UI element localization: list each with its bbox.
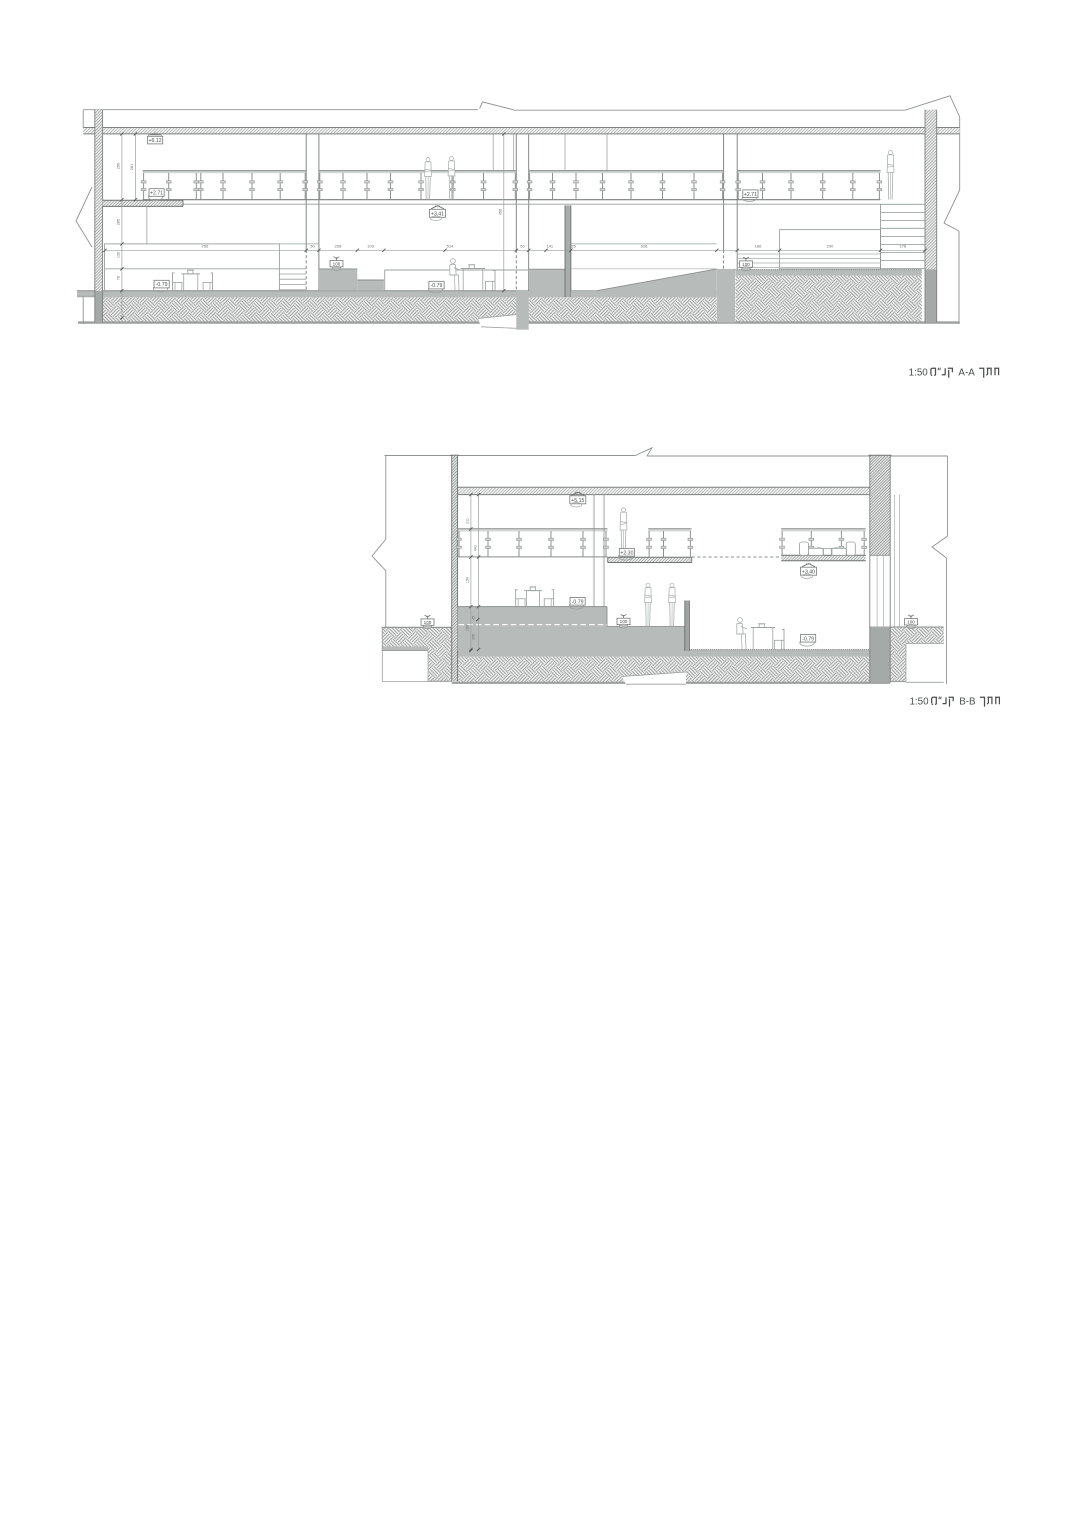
svg-text:281: 281 — [130, 164, 134, 170]
svg-text:256: 256 — [117, 163, 121, 169]
svg-text:100: 100 — [907, 620, 915, 625]
svg-text:100: 100 — [466, 625, 470, 631]
svg-text:290: 290 — [827, 244, 834, 249]
svg-text:A-A: A-A — [958, 368, 975, 379]
svg-text:141: 141 — [546, 244, 553, 249]
svg-text:100: 100 — [742, 262, 750, 267]
svg-text:1:50: 1:50 — [909, 368, 929, 379]
svg-text:456: 456 — [498, 209, 502, 215]
svg-text:78: 78 — [117, 276, 121, 280]
svg-text:441: 441 — [473, 545, 477, 551]
svg-text:-0.79: -0.79 — [572, 599, 584, 605]
svg-text:103: 103 — [367, 244, 374, 249]
svg-text:B-B: B-B — [959, 696, 976, 707]
svg-text:178: 178 — [899, 244, 906, 249]
svg-text:45: 45 — [472, 616, 476, 620]
svg-text:1:50: 1:50 — [909, 696, 929, 707]
svg-text:+2.71: +2.71 — [744, 192, 757, 198]
svg-text:-0.79: -0.79 — [431, 283, 443, 289]
svg-text:50: 50 — [310, 244, 315, 249]
svg-text:-0.79: -0.79 — [802, 636, 814, 642]
svg-text:-0.79: -0.79 — [156, 282, 168, 288]
svg-text:150: 150 — [466, 577, 470, 583]
svg-text:+2.30: +2.30 — [620, 550, 633, 556]
svg-text:+6.12: +6.12 — [149, 138, 162, 144]
svg-text:186: 186 — [755, 244, 762, 249]
svg-text:211: 211 — [466, 518, 470, 524]
svg-text:514: 514 — [447, 244, 454, 249]
svg-text:50: 50 — [520, 244, 525, 249]
svg-text:130: 130 — [117, 252, 121, 258]
svg-text:25: 25 — [571, 244, 576, 249]
svg-text:628: 628 — [641, 244, 648, 249]
svg-text:+2.71: +2.71 — [150, 191, 163, 197]
svg-text:285: 285 — [117, 219, 121, 225]
svg-text:756: 756 — [202, 244, 209, 249]
svg-text:100: 100 — [620, 619, 628, 624]
svg-text:100: 100 — [424, 620, 432, 625]
svg-text:100: 100 — [333, 262, 341, 267]
svg-text:208: 208 — [335, 244, 342, 249]
svg-text:100: 100 — [472, 634, 476, 640]
